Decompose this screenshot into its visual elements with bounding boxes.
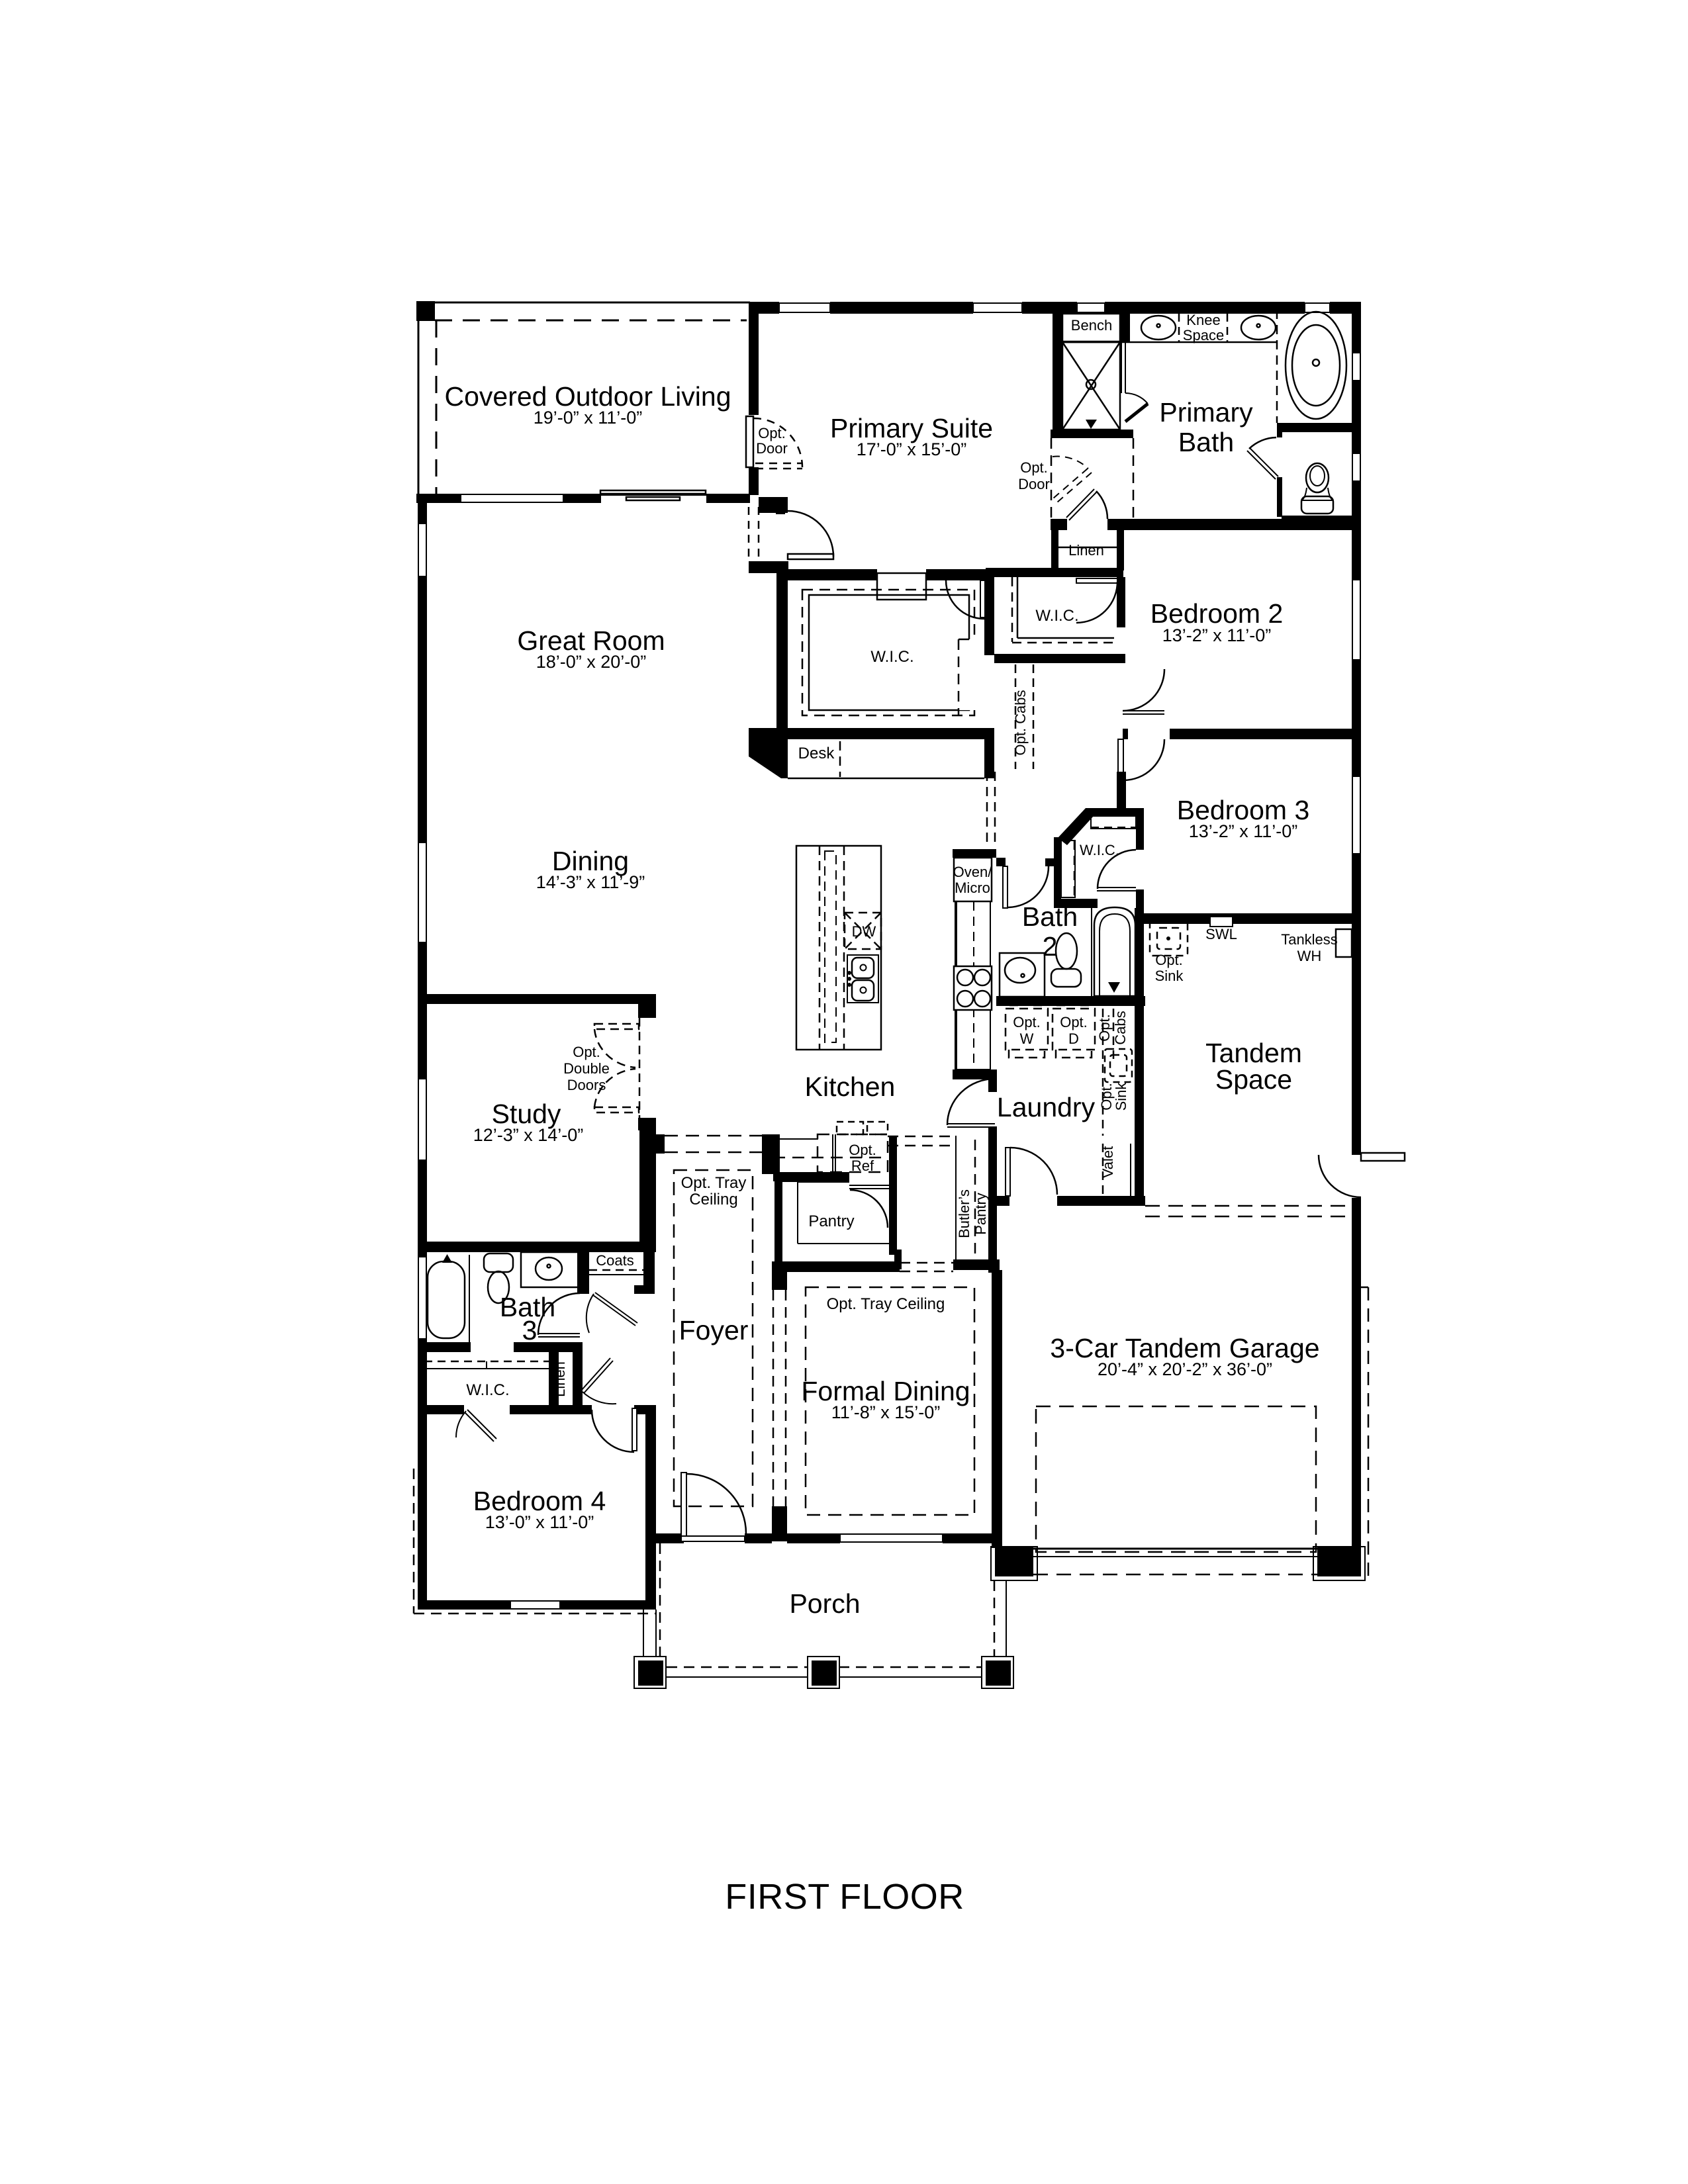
svg-text:19’-0” x 11’-0”: 19’-0” x 11’-0”	[534, 408, 643, 428]
svg-text:Ref: Ref	[851, 1158, 874, 1174]
svg-text:W.I.C.: W.I.C.	[870, 648, 914, 666]
svg-text:Laundry: Laundry	[997, 1092, 1096, 1122]
svg-text:Porch: Porch	[789, 1588, 860, 1619]
svg-text:Linen: Linen	[1068, 542, 1104, 559]
svg-text:Opt. Tray Ceiling: Opt. Tray Ceiling	[827, 1295, 945, 1313]
svg-text:Bedroom 2: Bedroom 2	[1150, 598, 1284, 629]
svg-text:3: 3	[522, 1315, 538, 1345]
svg-text:Space: Space	[1215, 1064, 1292, 1095]
svg-text:11’-8” x 15’-0”: 11’-8” x 15’-0”	[831, 1402, 941, 1422]
svg-text:Bath: Bath	[1178, 427, 1234, 457]
svg-text:Valet: Valet	[1100, 1146, 1116, 1179]
svg-text:13’-2” x 11’-0”: 13’-2” x 11’-0”	[1189, 821, 1298, 841]
svg-text:DW: DW	[852, 923, 876, 940]
svg-text:Butler’s: Butler’s	[956, 1189, 972, 1238]
svg-text:12’-3” x 14’-0”: 12’-3” x 14’-0”	[473, 1125, 584, 1145]
svg-text:Opt.: Opt.	[1096, 1014, 1113, 1042]
svg-text:W.I.C.: W.I.C.	[466, 1381, 509, 1399]
svg-text:Bath: Bath	[1022, 901, 1078, 932]
svg-text:W.I.C.: W.I.C.	[1080, 842, 1119, 858]
svg-text:Double: Double	[563, 1060, 610, 1077]
svg-text:13’-2” x 11’-0”: 13’-2” x 11’-0”	[1162, 625, 1272, 645]
svg-text:14’-3” x 11’-9”: 14’-3” x 11’-9”	[536, 872, 645, 892]
svg-text:Tankless: Tankless	[1281, 931, 1338, 948]
svg-text:Foyer: Foyer	[679, 1315, 749, 1345]
svg-text:Opt.: Opt.	[1060, 1014, 1088, 1030]
svg-text:13’-0” x 11’-0”: 13’-0” x 11’-0”	[485, 1512, 594, 1532]
svg-text:WH: WH	[1297, 948, 1322, 964]
svg-text:Opt.: Opt.	[758, 425, 786, 441]
svg-text:Space: Space	[1183, 327, 1224, 343]
svg-text:Linen: Linen	[551, 1361, 568, 1397]
svg-text:Door: Door	[1018, 476, 1050, 492]
svg-text:Primary: Primary	[1159, 397, 1253, 428]
svg-text:Ceiling: Ceiling	[689, 1191, 737, 1208]
svg-text:Opt.: Opt.	[573, 1044, 600, 1060]
svg-text:17’-0” x 15’-0”: 17’-0” x 15’-0”	[857, 439, 967, 459]
svg-text:Bench: Bench	[1071, 317, 1112, 334]
svg-text:Door: Door	[756, 440, 788, 457]
svg-text:20’-4” x 20’-2” x 36’-0”: 20’-4” x 20’-2” x 36’-0”	[1098, 1359, 1272, 1379]
svg-text:D: D	[1068, 1030, 1079, 1047]
svg-text:Opt.: Opt.	[1155, 952, 1183, 968]
svg-text:Micro: Micro	[955, 880, 990, 896]
svg-text:Cabs: Cabs	[1112, 1011, 1129, 1044]
svg-text:Pantry: Pantry	[808, 1212, 854, 1230]
svg-text:Opt.: Opt.	[1020, 459, 1048, 476]
svg-text:FIRST FLOOR: FIRST FLOOR	[725, 1877, 964, 1917]
svg-text:Knee: Knee	[1186, 312, 1220, 328]
svg-text:Pantry: Pantry	[972, 1193, 989, 1235]
svg-text:Opt.: Opt.	[1013, 1014, 1041, 1030]
svg-text:Coats: Coats	[596, 1252, 633, 1269]
svg-text:18’-0” x 20’-0”: 18’-0” x 20’-0”	[536, 652, 647, 672]
svg-text:SWL: SWL	[1205, 926, 1237, 942]
svg-text:Kitchen: Kitchen	[805, 1071, 896, 1102]
svg-text:Opt. Cabs: Opt. Cabs	[1012, 690, 1029, 755]
svg-text:Sink: Sink	[1155, 968, 1184, 984]
svg-text:Opt.: Opt.	[849, 1142, 876, 1158]
svg-text:Desk: Desk	[798, 745, 835, 762]
svg-text:W.I.C.: W.I.C.	[1035, 607, 1078, 625]
svg-text:W: W	[1020, 1030, 1034, 1047]
svg-text:Sink: Sink	[1113, 1082, 1129, 1111]
svg-text:Oven/: Oven/	[953, 864, 993, 880]
svg-text:Opt. Tray: Opt. Tray	[681, 1174, 747, 1192]
svg-text:Doors: Doors	[567, 1077, 606, 1093]
